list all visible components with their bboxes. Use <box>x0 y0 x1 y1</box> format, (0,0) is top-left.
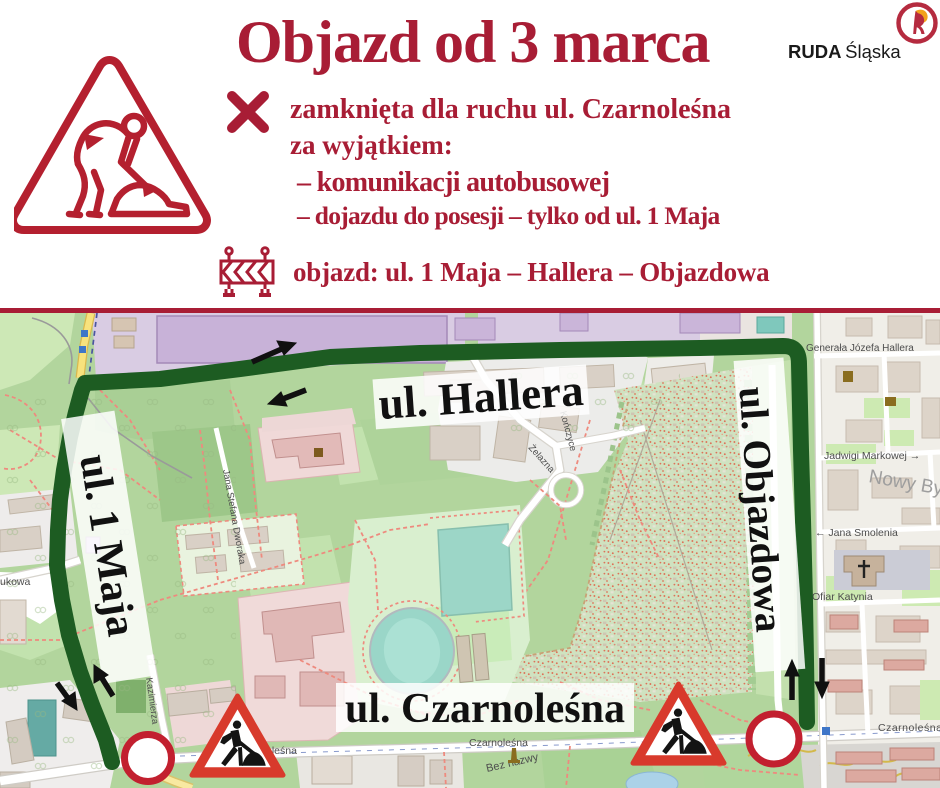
svg-text:Ofiar Katynia: Ofiar Katynia <box>812 591 873 603</box>
svg-text:Generała Józefa Hallera: Generała Józefa Hallera <box>806 343 914 354</box>
svg-text:Jadwigi Markowej →: Jadwigi Markowej → <box>824 450 920 462</box>
svg-text:ul. Czarnoleśna: ul. Czarnoleśna <box>345 686 625 732</box>
svg-text:Czarnoleśna: Czarnoleśna <box>878 722 940 734</box>
svg-text:← Jana Smolenia: ← Jana Smolenia <box>815 527 898 539</box>
svg-text:Czarnoleśna: Czarnoleśna <box>469 737 528 749</box>
svg-text:ukowa: ukowa <box>0 576 31 588</box>
